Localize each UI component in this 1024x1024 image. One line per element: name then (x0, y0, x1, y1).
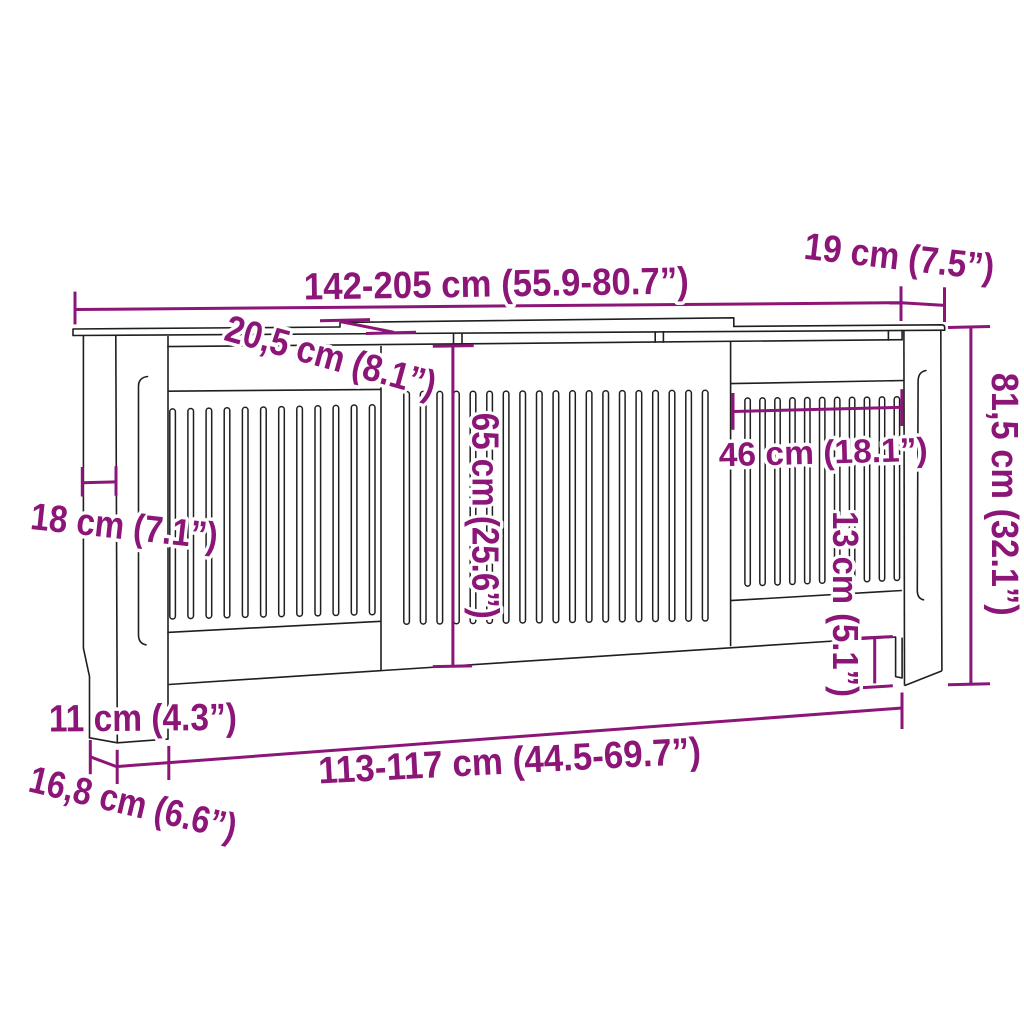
svg-text:65 cm (25.6”): 65 cm (25.6”) (463, 413, 505, 619)
svg-text:142-205 cm (55.9-80.7”): 142-205 cm (55.9-80.7”) (303, 260, 689, 308)
svg-text:19 cm (7.5”): 19 cm (7.5”) (802, 226, 997, 290)
svg-text:13 cm (5.1”): 13 cm (5.1”) (825, 511, 866, 697)
svg-text:81,5 cm (32.1”): 81,5 cm (32.1”) (983, 373, 1024, 616)
svg-text:20,5 cm (8.1”): 20,5 cm (8.1”) (220, 308, 440, 406)
svg-text:46 cm (18.1”): 46 cm (18.1”) (718, 432, 928, 474)
svg-text:113-117 cm (44.5-69.7”): 113-117 cm (44.5-69.7”) (317, 731, 702, 793)
svg-text:16,8 cm (6.6”): 16,8 cm (6.6”) (25, 759, 241, 849)
svg-text:11 cm (4.3”): 11 cm (4.3”) (49, 697, 237, 741)
